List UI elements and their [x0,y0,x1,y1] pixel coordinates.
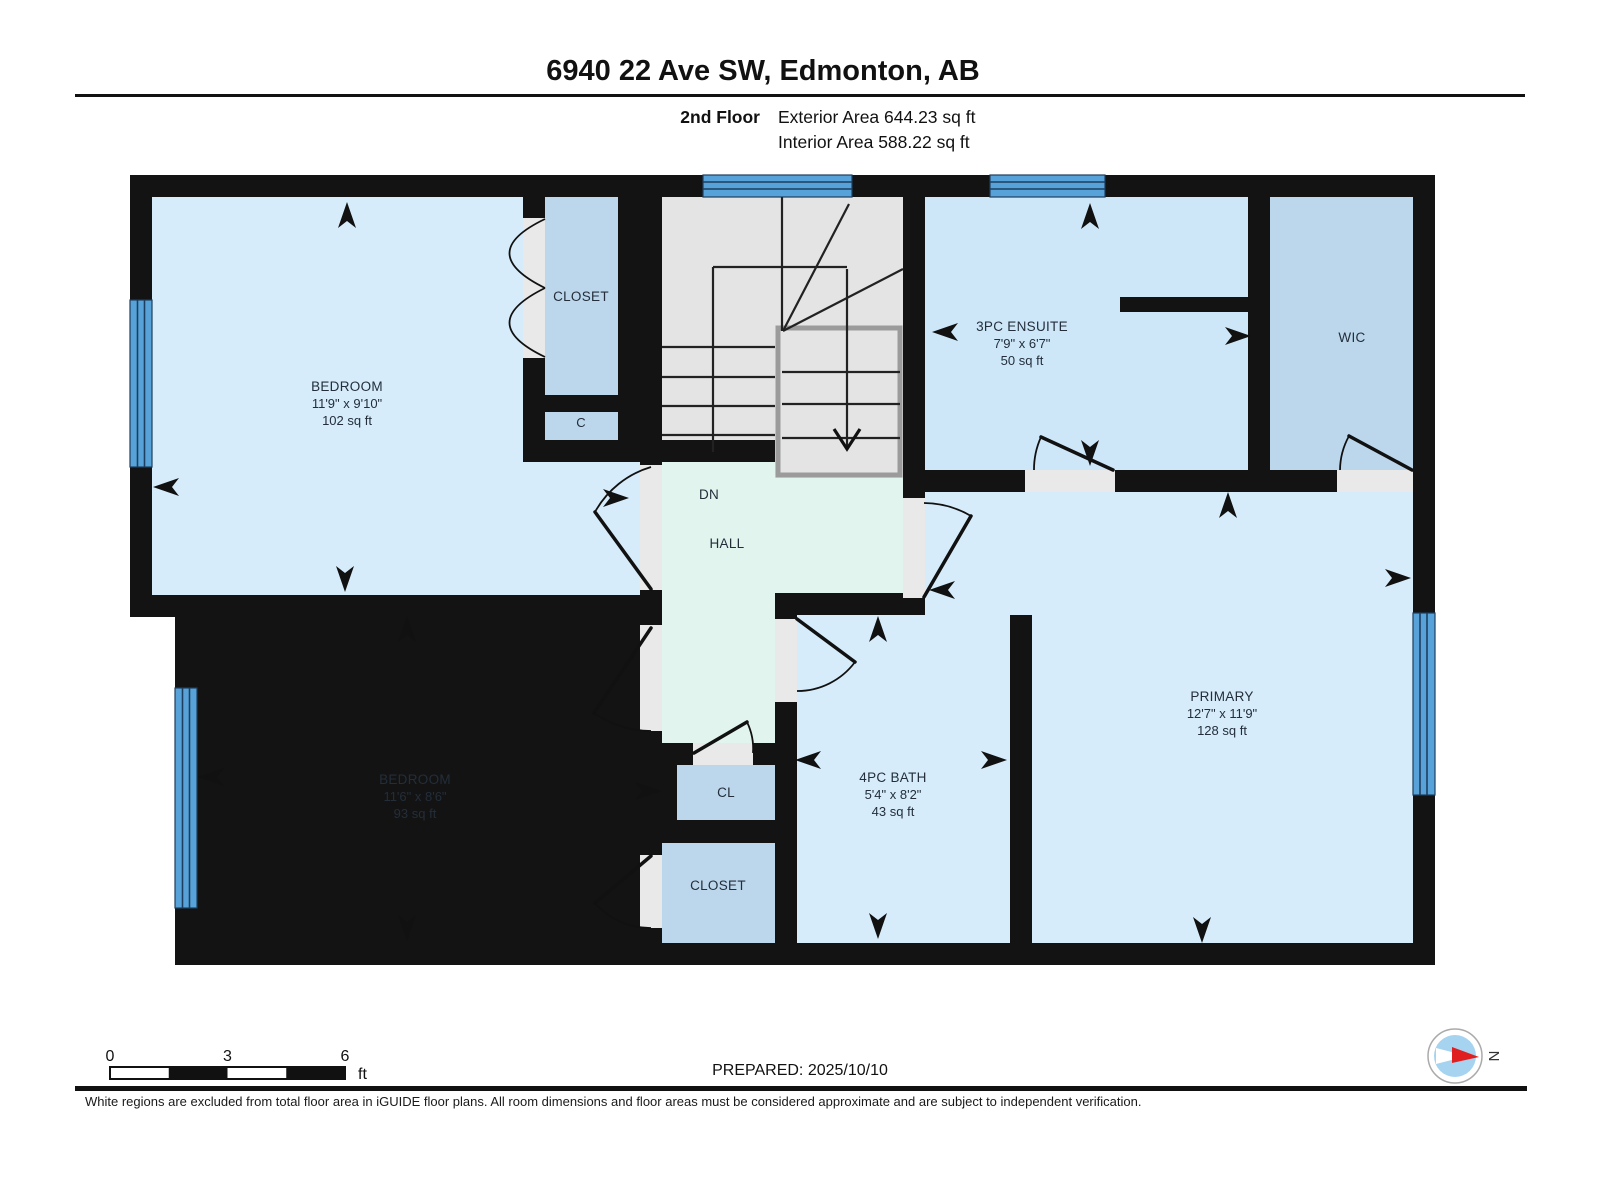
opening-wic [1337,470,1413,492]
room-ensuite [925,197,1248,470]
window-glass [130,300,152,467]
label-wic: WIC [1338,330,1365,345]
label-bath-dims: 5'4" x 8'2" [865,787,922,802]
label-ensuite-name: 3PC ENSUITE [976,319,1068,334]
scale-bar: 0 3 6 ft [106,1048,368,1083]
window-glass [703,175,852,197]
floor-label: 2nd Floor [680,107,760,127]
opening-primary [903,498,925,598]
compass-north-label: N [1485,1051,1502,1062]
label-primary-area: 128 sq ft [1197,723,1247,738]
opening-closet-bottom [640,855,662,928]
scale-tick-3: 3 [223,1048,232,1065]
scale-tick-6: 6 [341,1048,350,1065]
header-divider [75,94,1525,97]
scale-bar-segment [286,1067,345,1079]
header: 6940 22 Ave SW, Edmonton, AB 2nd Floor E… [75,55,1525,152]
ensuite-stub-wall [1120,297,1248,312]
scale-tick-0: 0 [106,1048,115,1065]
label-closet-bottom: CLOSET [690,878,746,893]
scale-bar-segment [169,1067,228,1079]
window-bedroom-top-left [130,300,152,467]
label-bedroom-bottom-area: 93 sq ft [394,806,437,821]
label-bedroom-bottom-name: BEDROOM [379,772,451,787]
floor-plan-canvas: 6940 22 Ave SW, Edmonton, AB 2nd Floor E… [0,0,1600,1200]
label-hall: HALL [710,536,745,551]
label-bedroom-top-name: BEDROOM [311,379,383,394]
window-stairs-top [703,175,852,197]
scale-unit: ft [358,1066,367,1083]
label-ensuite-dims: 7'9" x 6'7" [994,336,1051,351]
window-bedroom-bottom-left [175,688,197,908]
disclaimer-text: White regions are excluded from total fl… [85,1094,1141,1109]
opening-ensuite [1025,470,1115,492]
label-bath-area: 43 sq ft [872,804,915,819]
opening-closet-top [523,218,545,358]
footer-divider [75,1086,1527,1091]
exterior-area: Exterior Area 644.23 sq ft [778,107,976,127]
compass: N [1428,1029,1502,1083]
opening-bath [775,619,797,702]
room-closet-bottom [662,843,775,943]
footer: 0 3 6 ft PREPARED: 2025/10/10 N White re… [75,1029,1527,1109]
window-glass [175,688,197,908]
window-ensuite-top [990,175,1105,197]
label-closet-small: C [576,415,585,430]
label-ensuite-area: 50 sq ft [1001,353,1044,368]
page-title: 6940 22 Ave SW, Edmonton, AB [546,55,980,87]
label-stairs-down: DN [699,487,719,502]
window-glass [990,175,1105,197]
label-closet-top: CLOSET [553,289,609,304]
label-cl: CL [717,785,735,800]
floor-plan-page: 6940 22 Ave SW, Edmonton, AB 2nd Floor E… [0,0,1600,1200]
label-primary-name: PRIMARY [1190,689,1253,704]
label-primary-dims: 12'7" x 11'9" [1187,706,1258,721]
label-bath-name: 4PC BATH [859,770,926,785]
window-primary-right [1413,613,1435,795]
label-bedroom-top-area: 102 sq ft [322,413,372,428]
prepared-date: PREPARED: 2025/10/10 [712,1062,888,1079]
window-glass [1413,613,1435,795]
label-bedroom-top-dims: 11'9" x 9'10" [312,396,383,411]
interior-area: Interior Area 588.22 sq ft [778,132,970,152]
label-bedroom-bottom-dims: 11'6" x 8'6" [383,789,446,804]
opening-bedroom-top [640,465,662,590]
